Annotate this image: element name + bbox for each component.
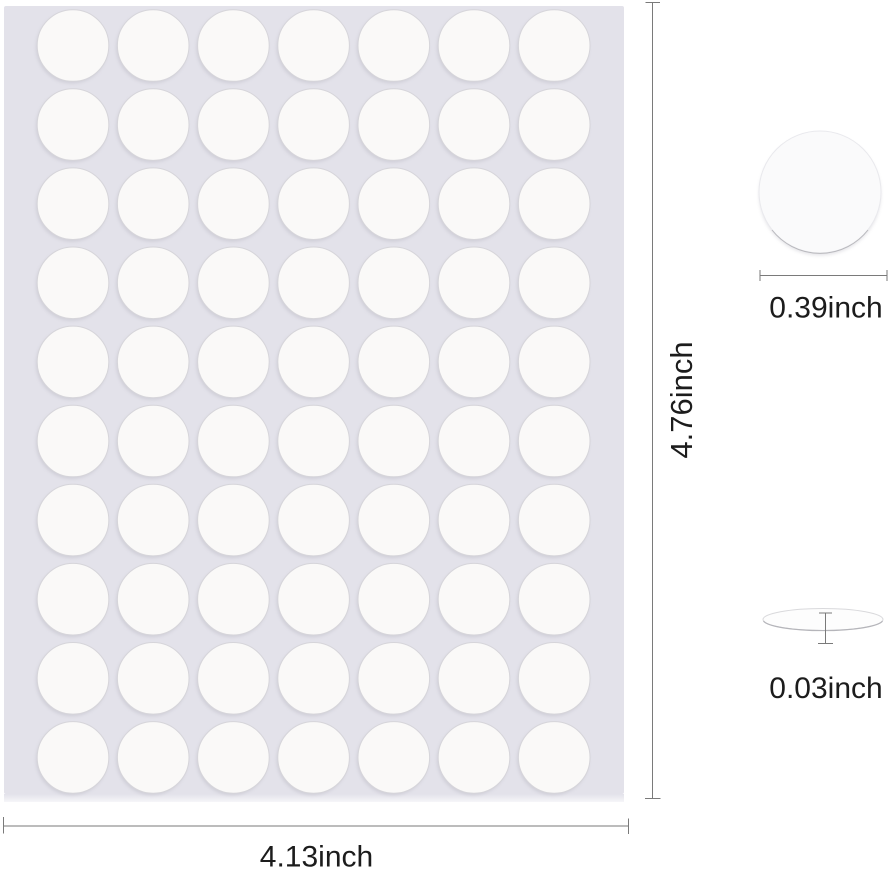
svg-text:4.13inch: 4.13inch bbox=[260, 841, 373, 870]
svg-text:0.03inch: 0.03inch bbox=[769, 672, 882, 705]
svg-text:0.39inch: 0.39inch bbox=[769, 292, 882, 325]
svg-text:4.76inch: 4.76inch bbox=[664, 341, 699, 458]
